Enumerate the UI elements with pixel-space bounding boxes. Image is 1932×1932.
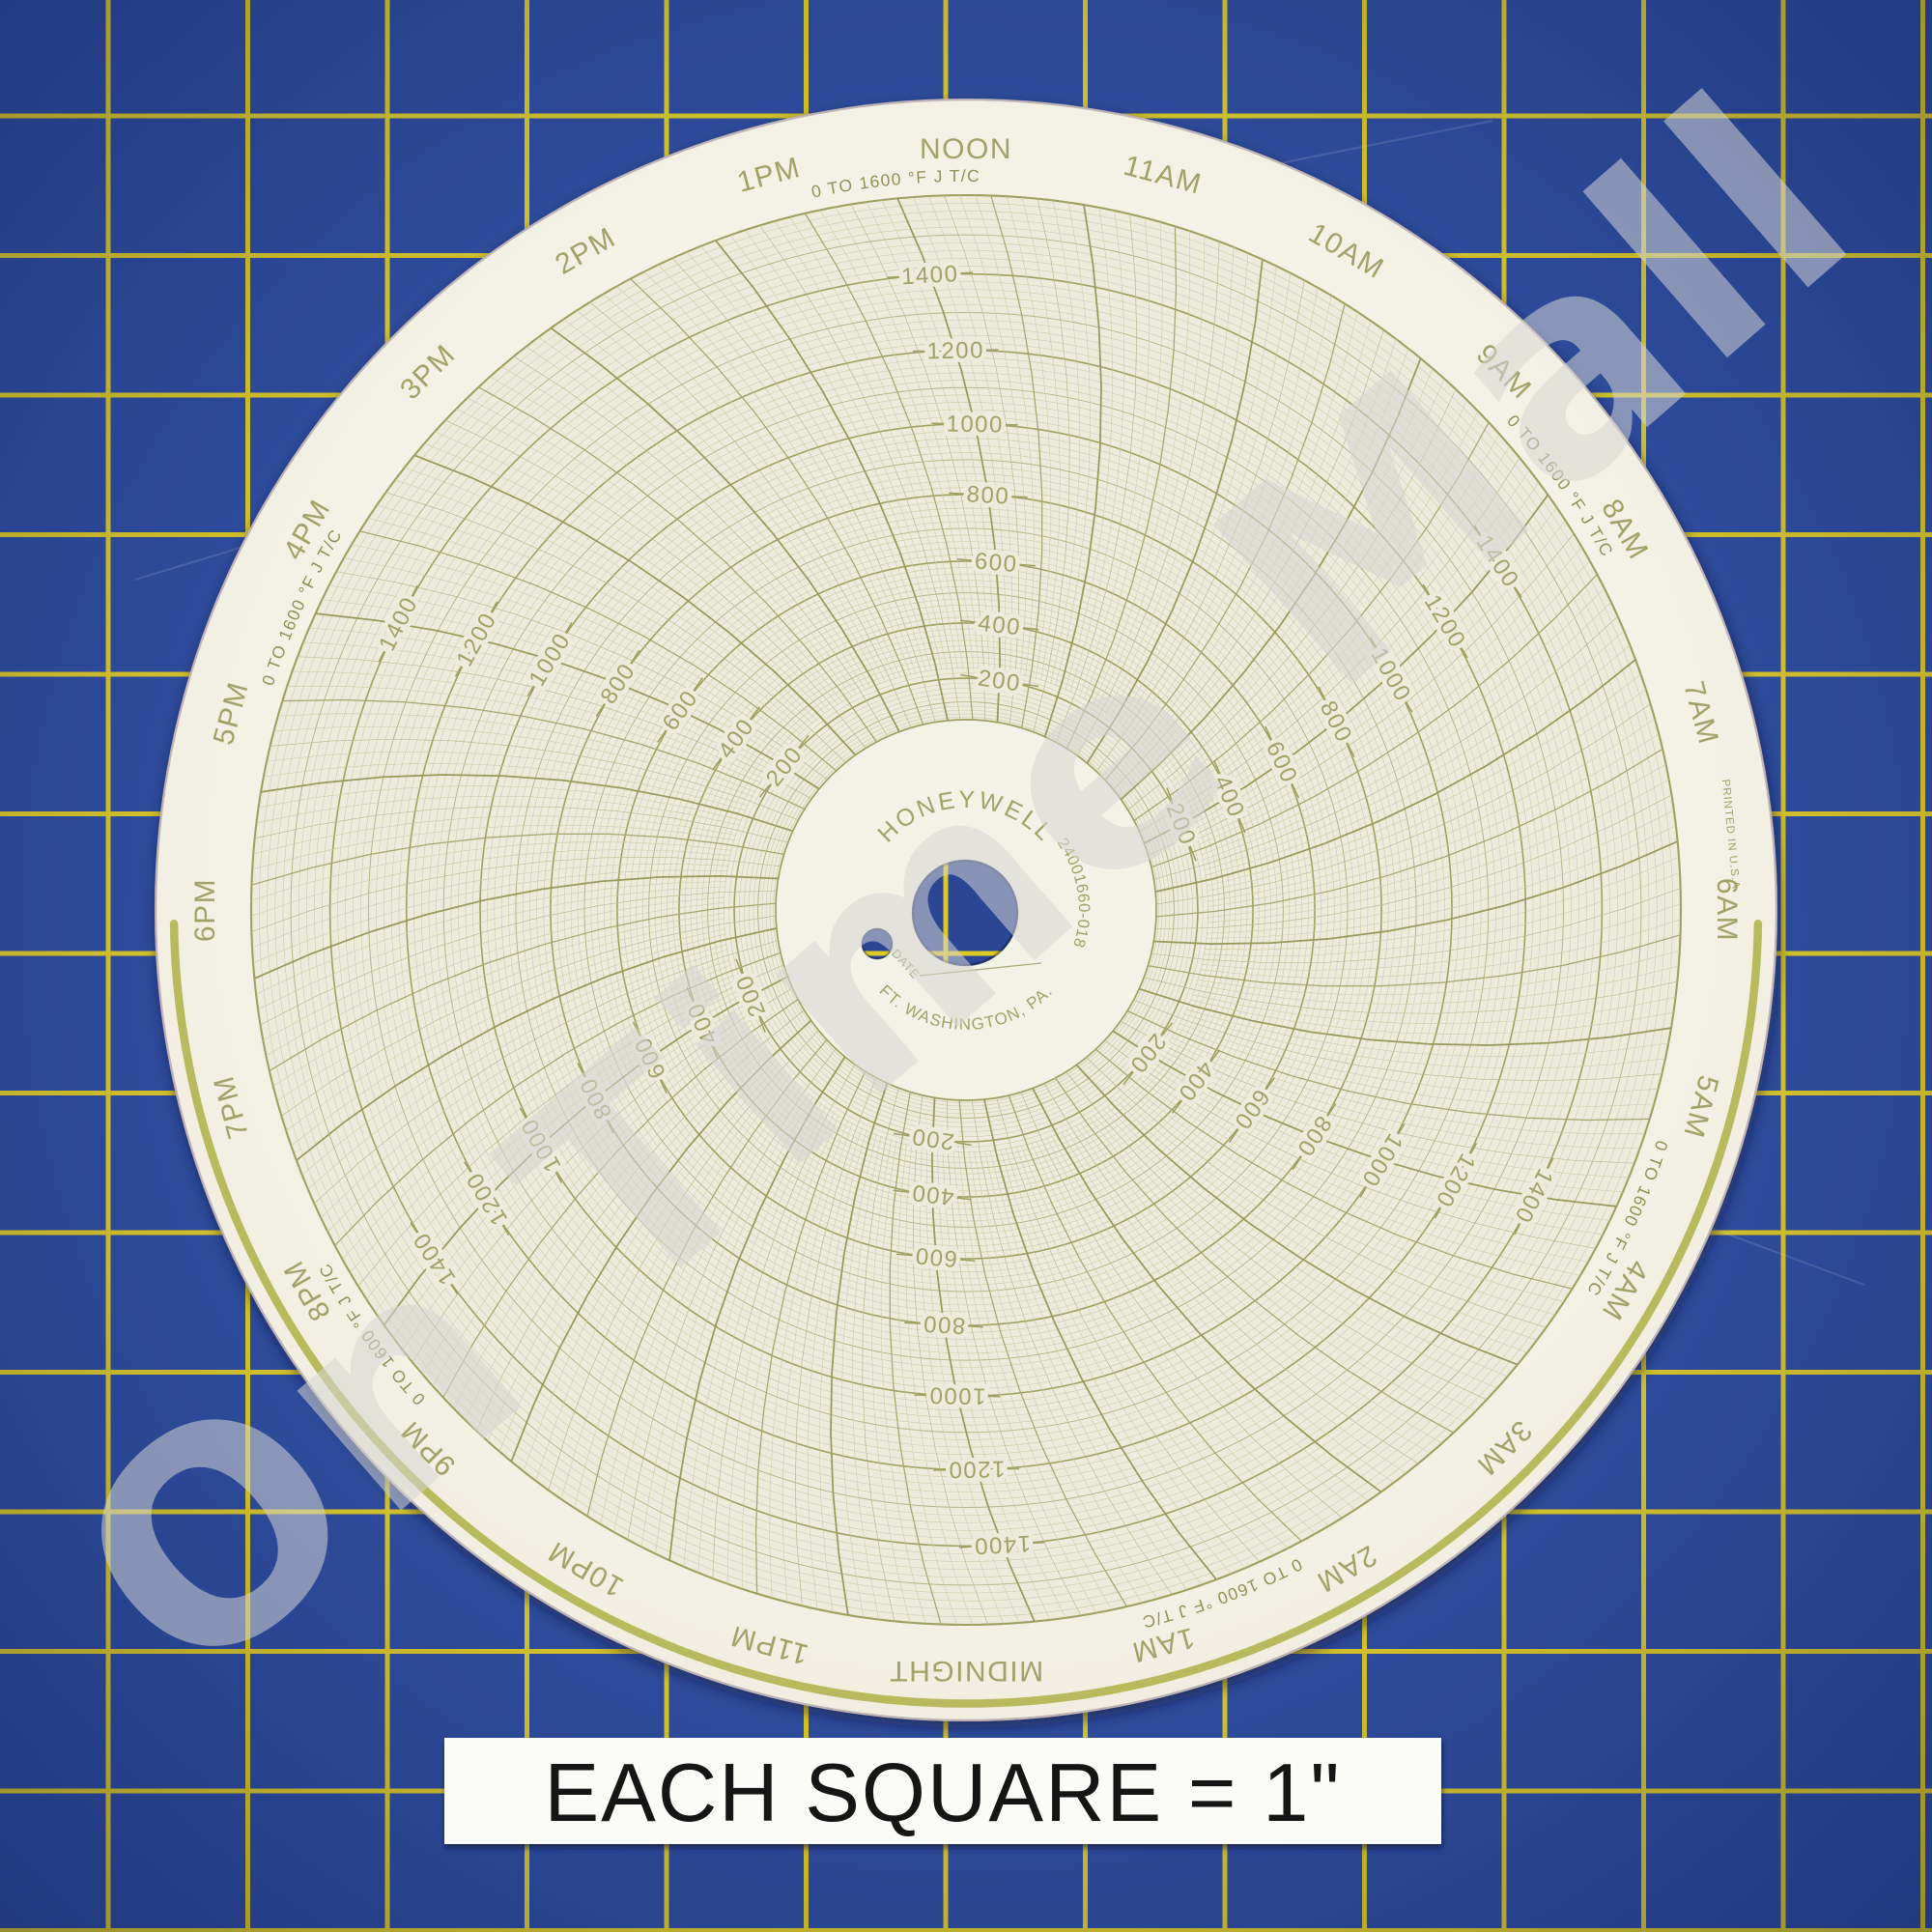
value-label: 1200 [948, 1456, 1006, 1483]
hour-label: 6PM [189, 878, 221, 942]
photo-svg: 2004006008001000120014002004006008001000… [0, 0, 1932, 1932]
value-label: 600 [913, 1242, 958, 1272]
caption-label: EACH SQUARE = 1" [444, 1738, 1441, 1844]
photo: 2004006008001000120014002004006008001000… [0, 0, 1932, 1932]
value-label: 800 [966, 481, 1010, 509]
value-label: 1000 [928, 1382, 986, 1409]
value-label: 800 [922, 1310, 966, 1338]
value-label: 1200 [926, 337, 984, 364]
value-label: 400 [910, 1179, 955, 1209]
caption-text: EACH SQUARE = 1" [544, 1747, 1341, 1839]
value-label: 1400 [973, 1530, 1032, 1559]
value-label: 1000 [946, 412, 1004, 439]
value-label: 600 [974, 548, 1019, 578]
hour-label: MIDNIGHT [889, 1655, 1043, 1687]
hour-label: NOON [920, 133, 1012, 165]
value-label: 1400 [900, 261, 959, 290]
